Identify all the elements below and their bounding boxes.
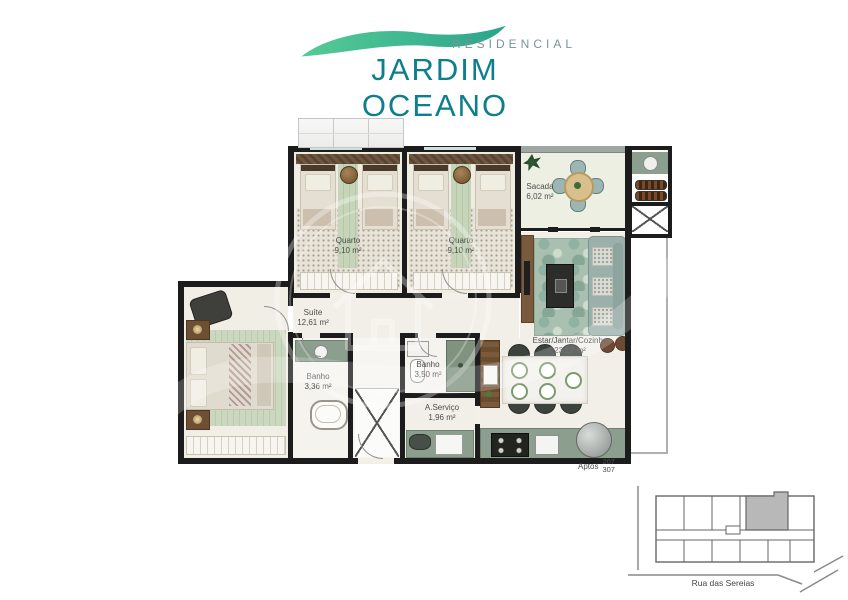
quarto2-clock [453, 166, 471, 184]
sofa [588, 236, 626, 336]
quarto2-label: Quarto 9,10 m² [447, 236, 474, 256]
sacada-railing [521, 146, 625, 153]
suite-bed [186, 342, 274, 410]
room-name: Banho [304, 372, 331, 382]
headboard [476, 165, 510, 171]
banho-social-label: Banho 3,50 m² [414, 360, 441, 380]
water-tank [576, 422, 612, 458]
sofa-pillow [592, 307, 613, 326]
room-name: Suíte [297, 308, 329, 318]
highlighted-unit [746, 492, 788, 530]
apartment-numbers: Aptos 207 307 [578, 458, 615, 475]
sliding-door-notch [590, 227, 600, 232]
room-name: A.Serviço [425, 403, 459, 413]
entry-door-gap [358, 458, 394, 464]
wall [402, 152, 407, 298]
room-area: 3,50 m² [414, 370, 441, 380]
quarto1-bed-left [300, 164, 336, 230]
quarto1-clock [340, 166, 358, 184]
wall [288, 281, 293, 306]
logo-residencial: RESIDENCIAL [452, 37, 576, 51]
servico-label: A.Serviço 1,96 m² [425, 403, 459, 423]
wall [293, 333, 302, 338]
window-glass [424, 147, 476, 150]
estar-label: Estar/Jantar/Cozinha 23,17 m² [533, 336, 608, 356]
dining-table [502, 356, 588, 404]
wall [400, 393, 480, 398]
room-area: 1,96 m² [425, 413, 459, 423]
tanque [409, 434, 431, 450]
lamp-icon [193, 325, 202, 334]
barbecue-icon [635, 191, 667, 201]
neighbour-line [666, 238, 668, 454]
blanket [365, 209, 393, 226]
round-sink-icon [643, 156, 658, 171]
lamp-icon [193, 415, 202, 424]
quarto1-label: Quarto 9,10 m² [334, 236, 361, 256]
aptos-label: Aptos [578, 462, 598, 471]
headboard [363, 165, 397, 171]
sacada-table-plant [574, 182, 581, 189]
plate [511, 362, 528, 379]
room-area: 12,61 m² [297, 318, 329, 328]
logo: RESIDENCIAL JARDIM OCEANO [0, 0, 848, 100]
drain-dot [458, 363, 463, 368]
barbecue-icon [635, 180, 667, 190]
sofa-pillow [592, 277, 613, 296]
wall [436, 333, 480, 338]
pillow [418, 174, 444, 191]
room-name: Quarto [447, 236, 474, 246]
wall [348, 338, 353, 458]
room-name: Estar/Jantar/Cozinha [533, 336, 608, 346]
blanket [416, 209, 444, 226]
shaft [632, 206, 668, 232]
tub-inner [315, 405, 341, 423]
aptos-units: 207 307 [602, 458, 615, 475]
quarto1-bed-right [362, 164, 398, 230]
room-area: 9,10 m² [334, 246, 361, 256]
wall [181, 458, 631, 464]
grill-counter [632, 152, 668, 174]
sliding-door [519, 228, 625, 231]
plate [539, 362, 556, 379]
room-area: 3,36 m² [304, 382, 331, 392]
sofa-back [613, 243, 623, 329]
blanket [303, 209, 331, 226]
room-name: Banho [414, 360, 441, 370]
door-gap [475, 406, 480, 424]
wall [288, 293, 520, 298]
quarto2-bed-right [475, 164, 511, 230]
laundry-sink [435, 434, 463, 455]
pillow [367, 174, 393, 191]
quarto2-closet [409, 154, 513, 164]
nightstand [186, 410, 210, 430]
sacada-label: Sacada 6,02 m² [526, 182, 553, 202]
open-window-bay [298, 118, 404, 148]
plate [539, 383, 556, 400]
wall [288, 332, 293, 464]
wall [400, 338, 405, 458]
room-name: Quarto [334, 236, 361, 246]
sliding-door-notch [548, 227, 558, 232]
street-label: Rua das Sereias [692, 578, 755, 588]
sofa-pillow [592, 247, 613, 266]
bathtub [310, 400, 348, 430]
floor-plan-page: RESIDENCIAL JARDIM OCEANO [0, 0, 848, 600]
blanket-edge [257, 344, 271, 406]
kitchen-island [480, 340, 500, 408]
apt-unit: 307 [602, 466, 615, 474]
wall [178, 281, 290, 287]
suite-label: Suíte 12,61 m² [297, 308, 329, 328]
suite-wardrobe [186, 436, 286, 455]
pillow [480, 174, 506, 191]
decor-dot [486, 391, 492, 397]
nightstand [186, 320, 210, 340]
logo-title: JARDIM OCEANO [302, 52, 568, 124]
blanket-pattern [229, 344, 251, 406]
headboard [414, 165, 448, 171]
tray [555, 279, 567, 293]
plate [511, 383, 528, 400]
floor-plan: Quarto 9,10 m² Quarto 9,10 m² Sacada 6,0… [178, 116, 672, 476]
wall [288, 146, 294, 298]
pillow [190, 379, 207, 407]
site-map: Rua das Sereias [628, 482, 848, 600]
room-area: 23,17 m² [533, 346, 608, 356]
room-area: 9,10 m² [447, 246, 474, 256]
island-sink [483, 365, 498, 385]
oven-icon [535, 435, 559, 455]
tv-panel [521, 235, 534, 323]
stove-icon [491, 433, 529, 457]
blanket [478, 209, 506, 226]
wall [178, 281, 184, 464]
plate [565, 372, 582, 389]
room-area: 6,02 m² [526, 192, 553, 202]
pillow [305, 174, 331, 191]
pillow [190, 347, 207, 375]
servico-counter [406, 430, 474, 458]
quarto1-closet [296, 154, 400, 164]
wall [475, 338, 480, 458]
wall [515, 146, 521, 293]
tv-icon [524, 261, 530, 295]
shower [446, 340, 476, 392]
coffee-table [546, 264, 574, 308]
neighbour-line [631, 452, 668, 454]
banho-suite-label: Banho 3,36 m² [304, 372, 331, 392]
window-mullion [299, 133, 403, 134]
quarto2-bed-left [413, 164, 449, 230]
room-name: Sacada [526, 182, 553, 192]
headboard [301, 165, 335, 171]
